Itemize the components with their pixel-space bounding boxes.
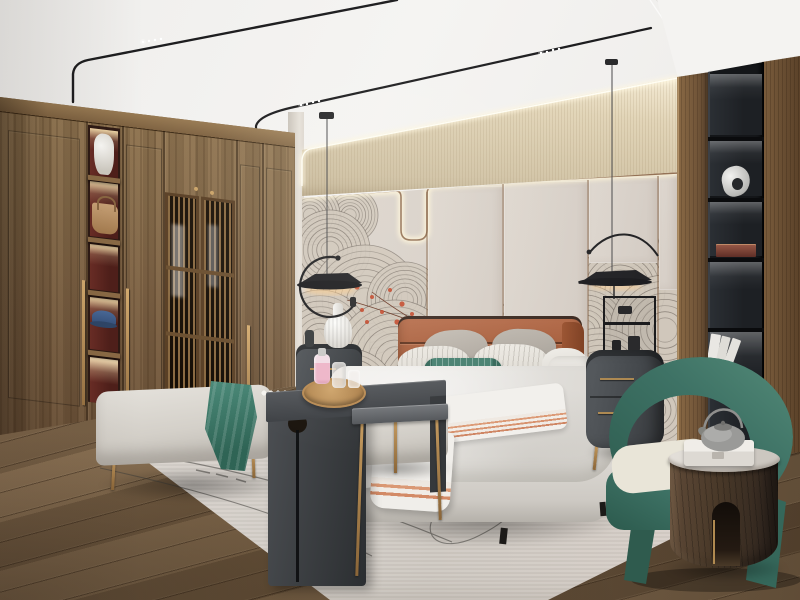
pendant-counterweight	[350, 297, 356, 307]
pendant-canopy	[319, 112, 334, 119]
bedroom-scene	[0, 0, 800, 600]
pendant-arc-arm	[590, 234, 658, 256]
pendant-canopy	[605, 59, 618, 65]
pendant-lamps	[0, 0, 800, 600]
